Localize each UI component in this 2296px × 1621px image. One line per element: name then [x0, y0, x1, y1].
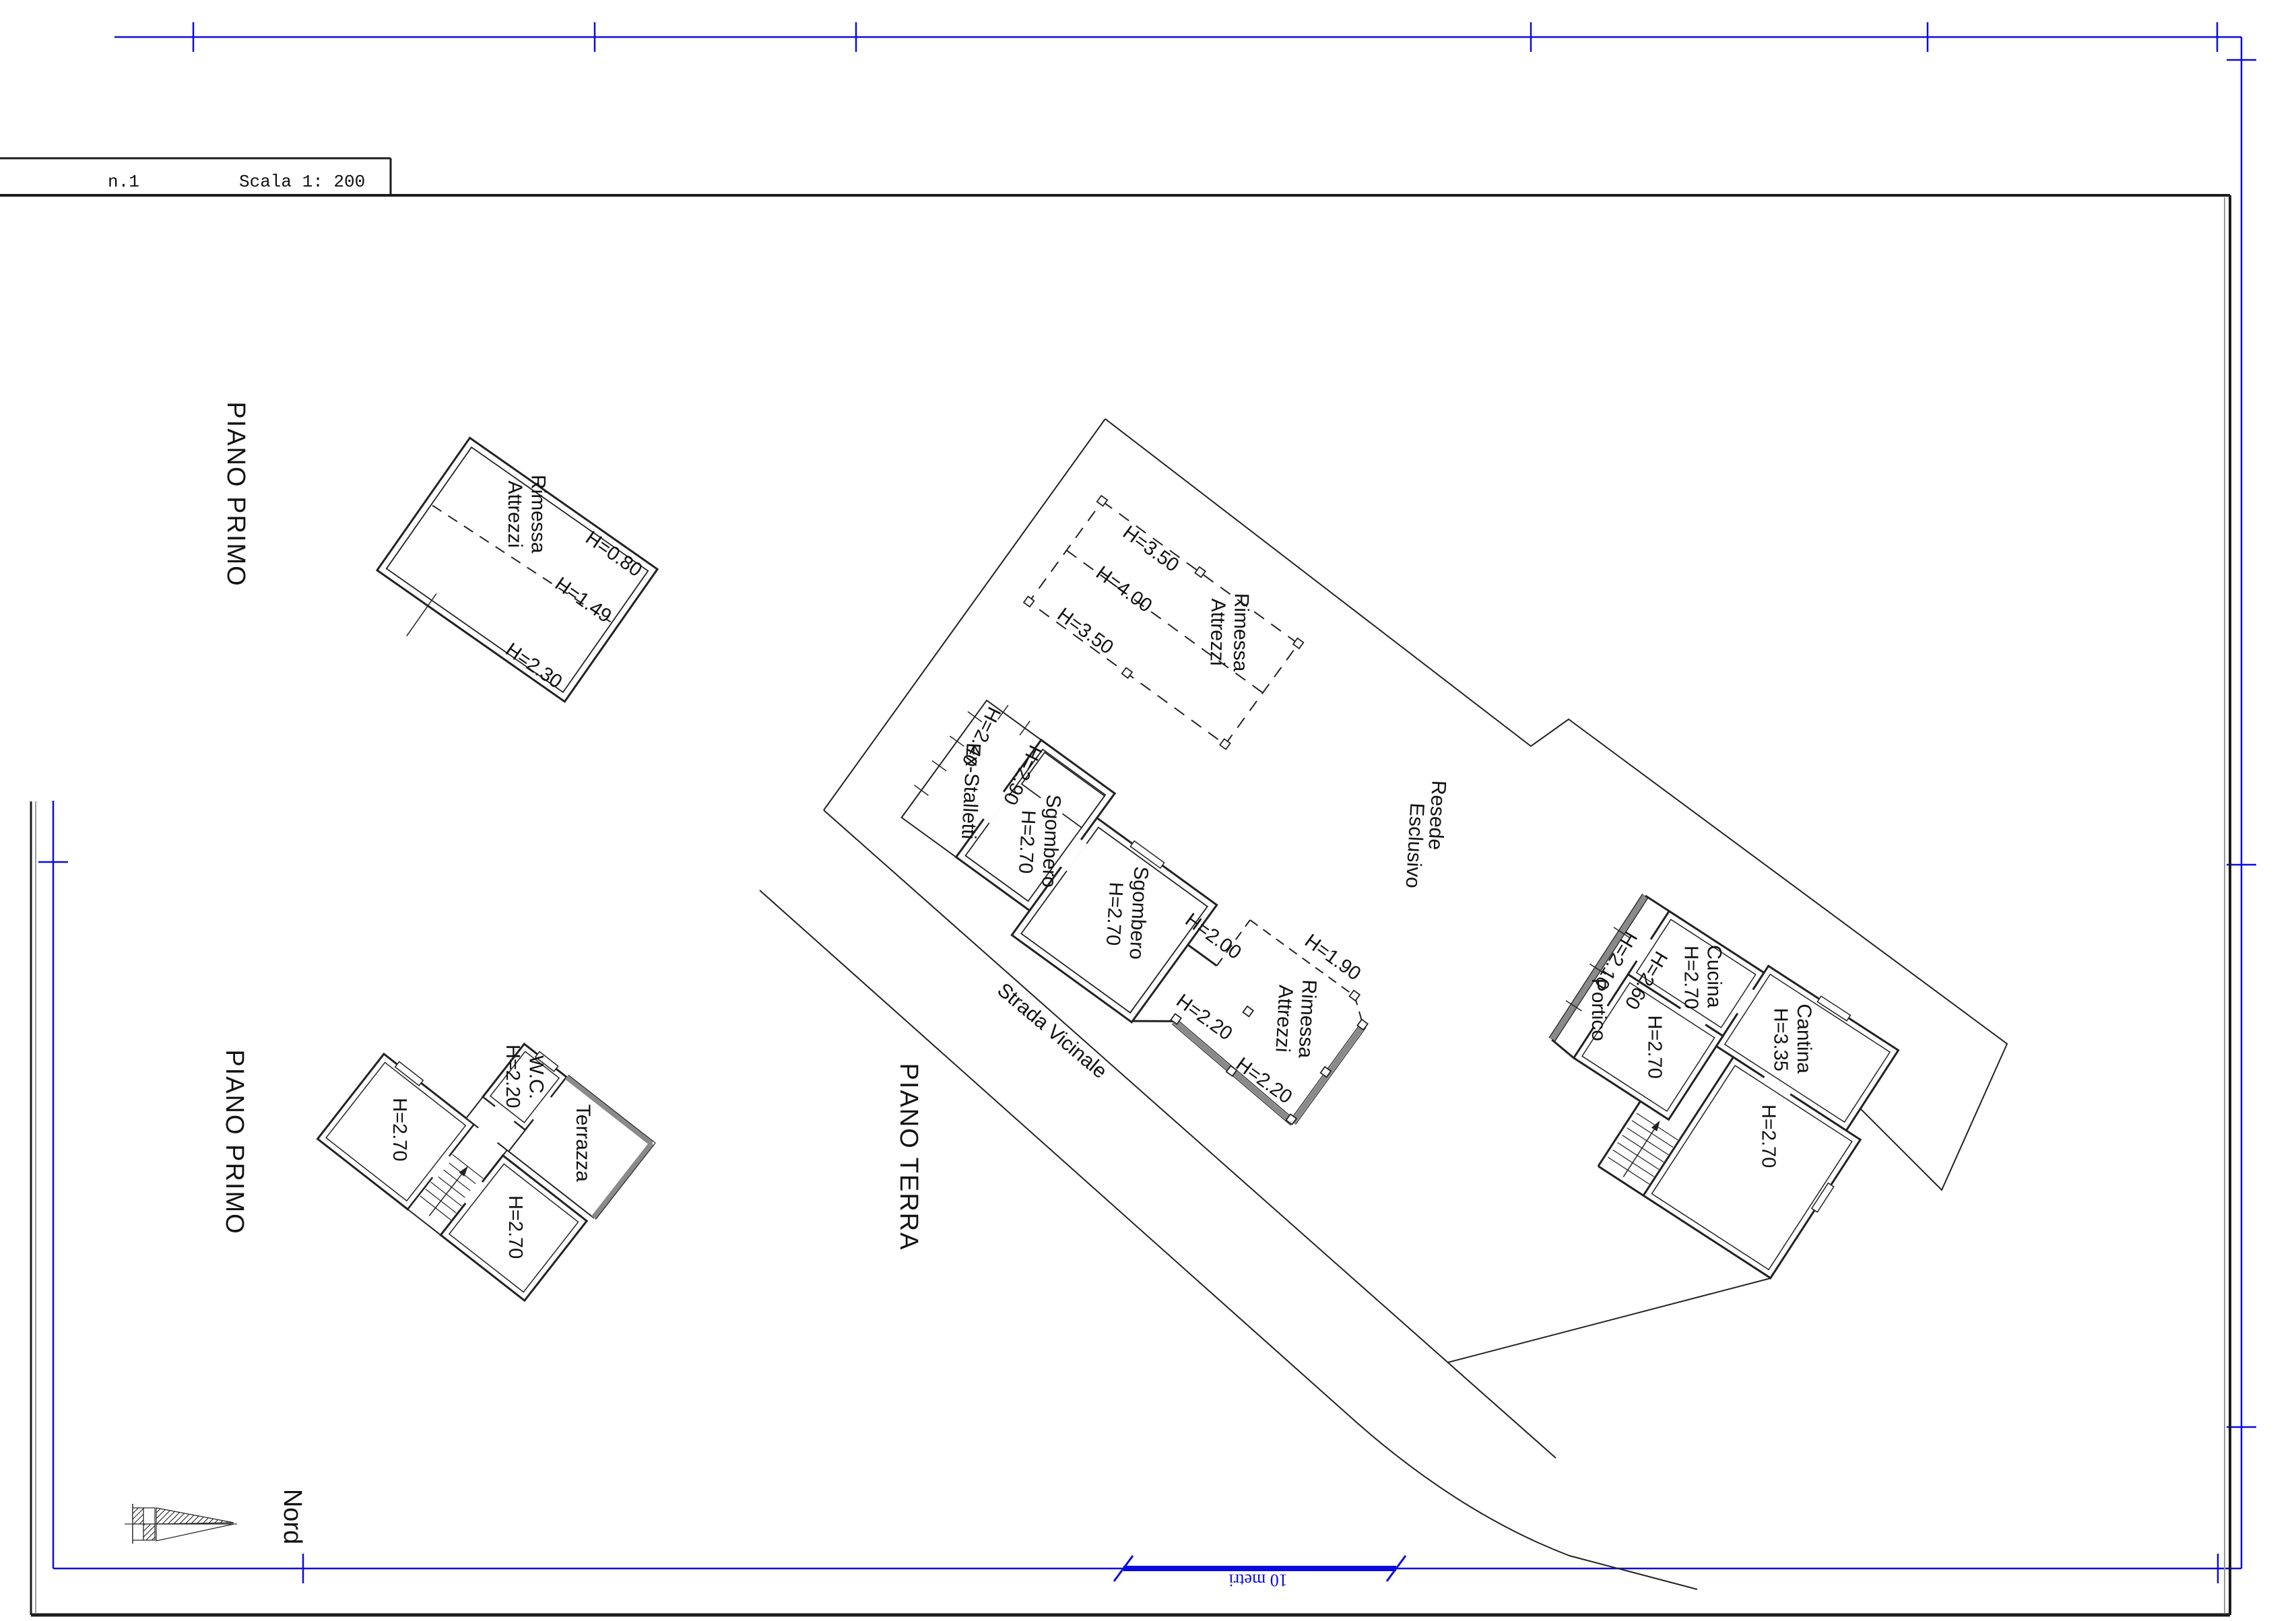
blue-frame [38, 22, 2256, 1583]
wc-label: W.C. [525, 1055, 548, 1099]
attic-room-label-line1: Rimessa [527, 475, 549, 554]
shed-height-bottom: H=3.50 [1053, 604, 1117, 659]
sw-wall-height-upper: H=2.20 [1172, 990, 1236, 1045]
terrazza-label: Terrazza [572, 1104, 594, 1182]
shed-label-line2: Attrezzi [1206, 598, 1229, 666]
room-left-height: H=2.70 [1643, 1015, 1665, 1078]
up-room-left-height: H=2.70 [389, 1098, 410, 1161]
plan-drawing: 10 metri n.1 Scala 1: 200 PIANO PRIMO PI… [0, 0, 2296, 1621]
floor-title-piano-primo-bottom: PIANO PRIMO [220, 1049, 249, 1234]
rimessa-label-line2: Attrezzi [1271, 985, 1297, 1053]
wc-height: H=2.20 [502, 1045, 523, 1108]
floor-title-piano-terra: PIANO TERRA [894, 1063, 923, 1251]
attic-building: Rimessa Attrezzi H=0.80 H=1.49 H=2.30 [356, 426, 666, 732]
north-arrow-checker [133, 1508, 143, 1524]
shed-label-line1: Rimessa [1229, 593, 1253, 672]
north-arrow-blade-lower [156, 1524, 234, 1541]
cucina-label: Cucina [1703, 945, 1726, 1008]
rimessa-dashed-corner [1344, 996, 1375, 1026]
shed-height-mid: H=4.00 [1092, 562, 1156, 617]
north-arrow [125, 1504, 237, 1544]
portico-end-wall-top [1645, 896, 1669, 911]
rimessa-height: H=1.90 [1301, 930, 1365, 985]
scale-bar-label: 10 metri [1228, 1570, 1287, 1590]
portico-end-wall-bottom [1550, 1040, 1575, 1058]
north-label: Nord [278, 1489, 306, 1544]
main-house: Portico H=2.10 H=2.60 Cucina H=2.70 Cant… [1500, 881, 1917, 1280]
cucina-height: H=2.70 [1680, 946, 1701, 1009]
upper-floor-house: H=2.70 W.C. H=2.20 Terrazza H=2.70 [317, 976, 657, 1304]
up-room-bottom-height: H=2.70 [504, 1195, 526, 1259]
doc-number: n.1 [108, 172, 139, 192]
room-bottom-height: H=2.70 [1757, 1104, 1779, 1168]
north-arrow-checker [143, 1524, 155, 1540]
boundary-south-link [1448, 1278, 1771, 1362]
floor-title-piano-primo-top: PIANO PRIMO [222, 401, 250, 587]
shed-height-top: H=3.50 [1119, 522, 1183, 576]
scale-label: Scala 1: 200 [239, 172, 365, 192]
north-arrow-checker [143, 1508, 155, 1524]
north-arrow-checker [133, 1524, 143, 1540]
cantina-label: Cantina [1793, 1004, 1815, 1074]
frame-ticks [38, 22, 2256, 1583]
sgombero1-height: H=2.70 [1014, 809, 1039, 874]
cantina-height: H=3.35 [1769, 1008, 1791, 1071]
floor-plan-sheet: 10 metri n.1 Scala 1: 200 PIANO PRIMO PI… [0, 0, 2296, 1621]
sgombero2-height: H=2.70 [1102, 882, 1127, 946]
resede-label-line2: Esclusivo [1402, 802, 1429, 888]
attic-room-label-line2: Attrezzi [504, 481, 526, 548]
north-arrow-blade-upper [156, 1508, 234, 1524]
rimessa-label-line1: Rimessa [1294, 979, 1320, 1059]
